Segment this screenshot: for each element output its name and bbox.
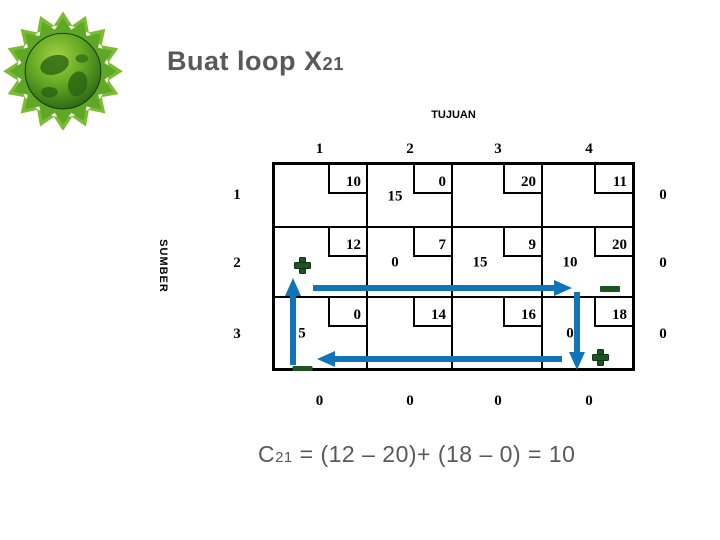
table-cell-3-4: 0 18 bbox=[543, 298, 632, 368]
table-cell-1-3: 20 bbox=[453, 165, 543, 228]
cost-value: 12 bbox=[346, 237, 361, 254]
globe-trees-logo-icon bbox=[0, 4, 126, 130]
row-header-3: 3 bbox=[224, 298, 250, 371]
title-text: Buat loop X bbox=[167, 46, 323, 76]
cost-value: 20 bbox=[612, 237, 627, 254]
demand-value-4: 0 bbox=[543, 391, 635, 411]
table-cell-3-1: 5 0 bbox=[275, 298, 368, 368]
supply-value-3: 0 bbox=[648, 298, 678, 371]
table-cell-2-3: 15 9 bbox=[453, 228, 543, 298]
cost-box: 10 bbox=[328, 165, 366, 194]
formula-lhs: C bbox=[258, 441, 275, 467]
table-cell-3-3: 16 bbox=[453, 298, 543, 368]
left-axis-label: SUMBER bbox=[157, 239, 169, 293]
cost-box: 0 bbox=[328, 298, 366, 327]
cost-value: 10 bbox=[346, 174, 361, 191]
cost-value: 11 bbox=[613, 174, 627, 191]
title-subscript: 21 bbox=[323, 53, 344, 74]
cost-value: 16 bbox=[521, 307, 536, 324]
cost-value: 14 bbox=[431, 307, 446, 324]
cost-box: 20 bbox=[594, 228, 632, 257]
demand-value-1: 0 bbox=[272, 391, 367, 411]
page-title: Buat loop X21 bbox=[167, 46, 344, 77]
cost-box: 9 bbox=[503, 228, 541, 257]
cost-box: 12 bbox=[328, 228, 366, 257]
cost-value: 18 bbox=[612, 307, 627, 324]
cost-box: 20 bbox=[503, 165, 541, 194]
allocation-value: 0 bbox=[391, 255, 399, 272]
allocation-value: 5 bbox=[298, 326, 306, 343]
col-header-4: 4 bbox=[543, 139, 635, 159]
cost-value: 0 bbox=[439, 174, 447, 191]
cost-box: 14 bbox=[413, 298, 451, 327]
cost-value: 0 bbox=[354, 307, 362, 324]
allocation-value: 15 bbox=[473, 255, 488, 272]
demand-value-2: 0 bbox=[367, 391, 453, 411]
cost-box: 0 bbox=[413, 165, 451, 194]
col-header-2: 2 bbox=[367, 139, 453, 159]
supply-value-1: 0 bbox=[648, 162, 678, 228]
cost-box: 11 bbox=[594, 165, 632, 194]
table-cell-2-2: 0 7 bbox=[368, 228, 453, 298]
allocation-value: 10 bbox=[563, 255, 578, 272]
cost-box: 7 bbox=[413, 228, 451, 257]
cost-value: 7 bbox=[439, 237, 447, 254]
slide: Buat loop X21 TUJUAN SUMBER 1 2 3 4 1 2 … bbox=[0, 0, 720, 540]
cost-box: 16 bbox=[503, 298, 541, 327]
col-header-1: 1 bbox=[272, 139, 367, 159]
formula-subscript: 21 bbox=[275, 449, 293, 466]
cost-formula: C21 = (12 – 20)+ (18 – 0) = 10 bbox=[258, 441, 575, 468]
formula-expression: = (12 – 20)+ (18 – 0) = 10 bbox=[293, 441, 576, 467]
allocation-value: 15 bbox=[388, 188, 403, 205]
transportation-table: 10 15 0 20 11 12 0 7 15 9 10 20 bbox=[272, 162, 635, 371]
top-axis-label: TUJUAN bbox=[272, 109, 635, 121]
cost-value: 20 bbox=[521, 174, 536, 191]
table-cell-2-4: 10 20 bbox=[543, 228, 632, 298]
row-header-1: 1 bbox=[224, 162, 250, 228]
table-cell-1-2: 15 0 bbox=[368, 165, 453, 228]
row-header-2: 2 bbox=[224, 228, 250, 298]
cost-value: 9 bbox=[529, 237, 537, 254]
supply-value-2: 0 bbox=[648, 228, 678, 298]
col-header-3: 3 bbox=[453, 139, 543, 159]
table-cell-2-1: 12 bbox=[275, 228, 368, 298]
table-cell-1-4: 11 bbox=[543, 165, 632, 228]
table-cell-3-2: 14 bbox=[368, 298, 453, 368]
allocation-value: 0 bbox=[566, 326, 574, 343]
demand-value-3: 0 bbox=[453, 391, 543, 411]
cost-box: 18 bbox=[594, 298, 632, 327]
table-cell-1-1: 10 bbox=[275, 165, 368, 228]
